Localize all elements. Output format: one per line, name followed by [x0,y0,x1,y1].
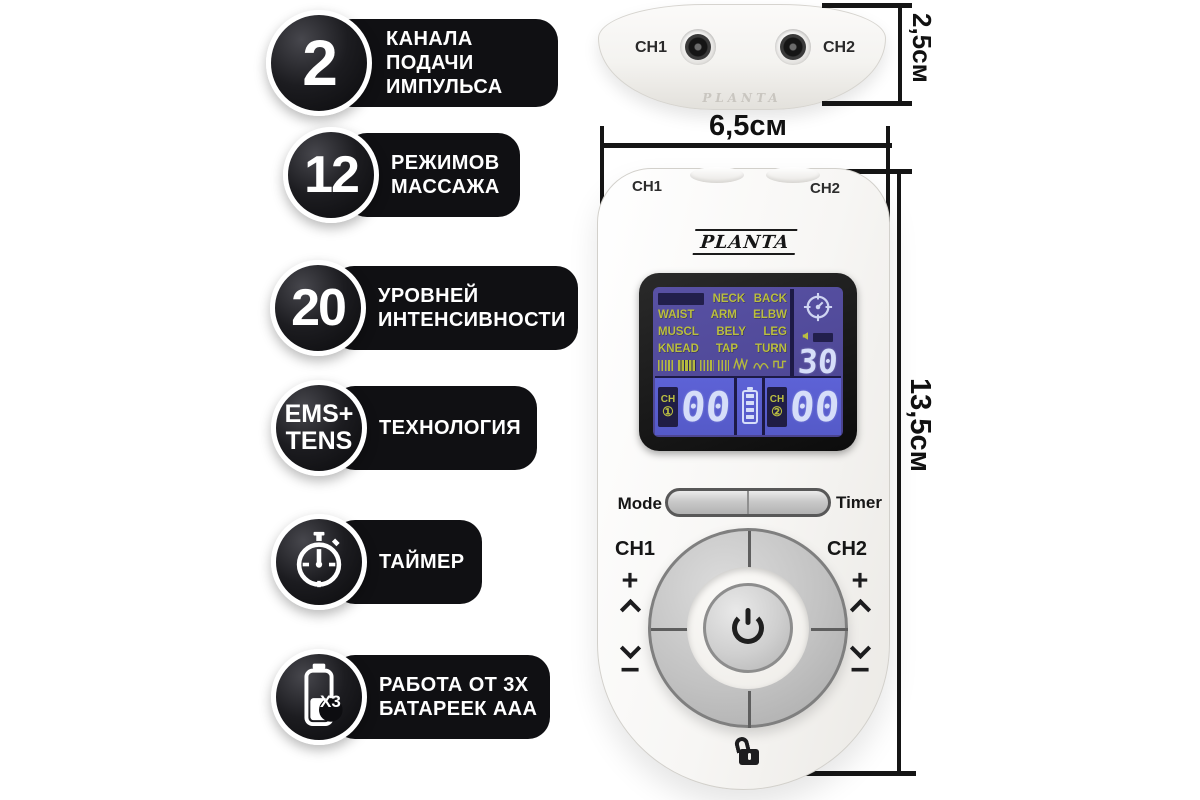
waveform-square-icon [773,357,787,375]
timer-value: 30 [797,346,839,377]
feature-label-line: ИМПУЛЬСА [386,75,558,99]
socket-bump [690,167,744,183]
dimension-line-height [897,169,901,776]
feature-badge-number: 20 [291,278,345,338]
lcd-blank-chip [813,333,833,342]
channel1-chip: CH ① [658,387,678,427]
feature-label-line: БАТАРЕЕК AAA [379,697,550,721]
channel1-value: 00 [679,384,732,430]
feature-label-line: КАНАЛА ПОДАЧИ [386,27,558,75]
channel1-panel: CH ① 00 [655,378,734,435]
channel-number: ② [771,405,783,419]
unlock-icon [735,737,761,767]
feature-badge-circle: X3 [271,649,367,745]
feature-badge-circle: 2 [266,10,372,116]
device-ch1-label: CH1 [632,178,662,195]
dimension-label-width: 6,5см [640,110,856,143]
body-zone-label: TURN [755,343,787,355]
clock-icon [803,292,833,327]
body-zone-label: BELY [716,326,746,338]
body-zone-label: NECK [713,293,746,305]
lcd-screen: NECK BACK WAIST ARM ELBW MUSCL BELY LEG [653,287,843,437]
wheel-divider [748,691,751,728]
timer-label: Timer [836,493,882,513]
wheel-divider [748,531,751,568]
ch2-minus-label: − [847,661,873,679]
feature-badge-circle: EMS+ TENS [271,380,367,476]
lcd-mode-row: WAIST ARM ELBW [658,308,787,323]
battery-count-label: X3 [320,692,341,712]
ch1-minus-label: − [617,661,643,679]
jack-socket-icon [780,34,806,60]
body-zone-label: LEG [763,326,787,338]
waveform-block-icon [678,360,696,371]
ch2-plus-label: + [847,568,873,594]
ch1-control-label: CH1 [615,538,655,561]
channel-number: ① [662,405,674,419]
brand-logo: PLANTA [693,229,798,255]
body-zone-label: ARM [711,309,737,321]
battery-icon: X3 [290,662,348,733]
body-zone-label: KNEAD [658,343,699,355]
feature-badge-text: TENS [286,428,353,455]
body-zone-label: ELBW [753,309,787,321]
channel2-value: 00 [788,384,841,430]
ch1-plus-label: + [617,568,643,594]
jack-socket-icon [685,34,711,60]
battery-panel [737,378,762,435]
channel2-panel: CH ② 00 [765,378,841,435]
lcd-blank-chip [658,293,704,305]
feature-badge-number: 2 [302,26,336,100]
chevron-up-icon [850,599,871,620]
waveform-pulse-icon [718,360,729,371]
lcd-mode-row: MUSCL BELY LEG [658,325,787,340]
lcd-channel-zone: CH ① 00 CH ② [655,378,841,435]
power-button[interactable] [703,583,793,673]
stopwatch-icon [290,531,348,594]
mode-button-half[interactable] [668,491,749,514]
wheel-divider [811,628,848,631]
waveform-bars-icon [700,360,714,371]
dimension-line-depth [898,6,902,103]
lcd-timer-zone: 30 [794,289,841,375]
dimension-line-width [602,143,892,148]
feature-label-line: ТЕХНОЛОГИЯ [379,416,537,440]
body-zone-label: TAP [716,343,738,355]
device-top-view: CH1 CH2 PLANTA [598,4,886,110]
waveform-humps-icon [753,357,769,375]
body-zone-label: BACK [754,293,787,305]
feature-label-line: ИНТЕНСИВНОСТИ [378,308,578,332]
battery-indicator-icon [742,390,758,424]
lcd-mode-zone: NECK BACK WAIST ARM ELBW MUSCL BELY LEG [655,289,790,375]
feature-badge-number: 12 [304,145,358,205]
ch1-port-label: CH1 [635,39,667,57]
ch2-jack-port [775,29,811,65]
wheel-divider [651,628,688,631]
feature-badge-text: EMS+ [285,401,354,428]
body-zone-label: WAIST [658,309,694,321]
ch2-port-label: CH2 [823,39,855,57]
mode-label: Mode [610,494,662,514]
body-zone-label: MUSCL [658,326,699,338]
device-ch2-label: CH2 [810,180,840,197]
product-infographic: КАНАЛА ПОДАЧИ ИМПУЛЬСА 2 РЕЖИМОВ МАССАЖА… [0,0,1200,800]
feature-badge-circle: 12 [283,127,379,223]
lcd-mode-row: KNEAD TAP TURN [658,341,787,356]
feature-label-line: МАССАЖА [391,175,520,199]
waveform-zigzag-icon [733,357,749,375]
lcd-bezel: NECK BACK WAIST ARM ELBW MUSCL BELY LEG [639,273,857,451]
feature-label-line: РАБОТА ОТ 3X [379,673,550,697]
feature-badge-circle: 20 [270,260,366,356]
mode-timer-rocker[interactable] [665,488,831,517]
channel2-chip: CH ② [767,387,787,427]
feature-label-line: УРОВНЕЙ [378,284,578,308]
ch1-jack-port [680,29,716,65]
device-front-view: CH1 CH2 PLANTA NECK BACK WAIST ARM ELBW [597,168,890,790]
dimension-label-depth: 2,5см [906,13,937,83]
dimension-label-height: 13,5см [903,378,936,472]
lcd-waveform-row [658,358,787,373]
timer-button-half[interactable] [749,491,828,514]
waveform-bars-icon [658,360,674,371]
ch2-control-label: CH2 [827,538,867,561]
chevron-up-icon [620,599,641,620]
feature-label-line: РЕЖИМОВ [391,151,520,175]
control-wheel[interactable] [648,528,848,728]
feature-label-line: ТАЙМЕР [379,550,482,574]
lcd-mode-row: NECK BACK [658,291,787,306]
feature-badge-circle [271,514,367,610]
feature-label: УРОВНЕЙ ИНТЕНСИВНОСТИ [332,266,578,350]
power-icon [732,612,764,644]
